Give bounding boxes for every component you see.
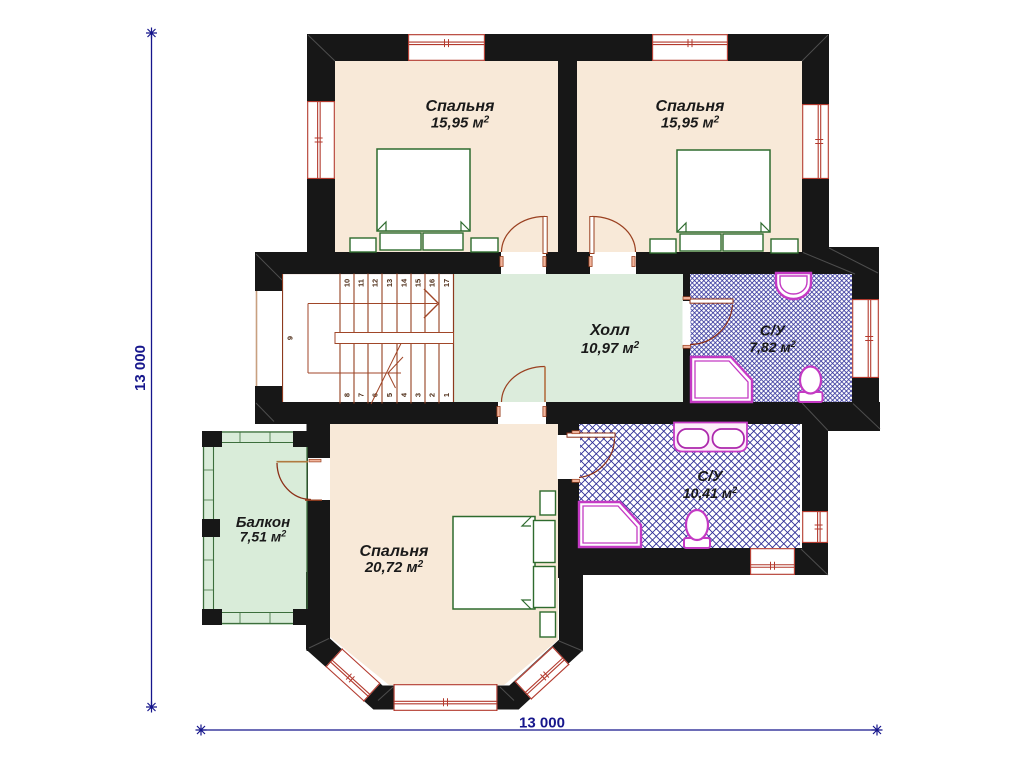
svg-text:10: 10 [343, 279, 352, 287]
svg-text:15: 15 [414, 279, 423, 287]
svg-text:12: 12 [371, 279, 380, 287]
svg-text:8: 8 [343, 393, 352, 397]
svg-text:Холл: Холл [589, 322, 630, 339]
svg-text:Спальня: Спальня [656, 98, 726, 115]
svg-text:С/У: С/У [760, 323, 787, 340]
svg-text:3: 3 [414, 393, 423, 397]
svg-text:15,95 м2: 15,95 м2 [431, 115, 490, 132]
svg-text:Спальня: Спальня [360, 543, 430, 560]
svg-text:2: 2 [428, 393, 437, 397]
svg-text:20,72 м2: 20,72 м2 [364, 559, 424, 576]
svg-text:17: 17 [442, 279, 451, 287]
svg-text:10,41 м2: 10,41 м2 [683, 485, 737, 501]
svg-text:С/У: С/У [697, 468, 724, 485]
svg-text:14: 14 [400, 278, 409, 287]
svg-text:11: 11 [357, 279, 366, 287]
svg-text:9: 9 [286, 336, 295, 340]
svg-text:7: 7 [357, 393, 366, 397]
svg-text:13 000: 13 000 [519, 715, 565, 732]
svg-text:15,95 м2: 15,95 м2 [661, 115, 720, 132]
svg-text:16: 16 [428, 279, 437, 287]
svg-text:Спальня: Спальня [426, 98, 496, 115]
svg-text:5: 5 [385, 393, 394, 397]
svg-text:1: 1 [442, 393, 451, 397]
svg-text:10,97 м2: 10,97 м2 [581, 340, 640, 357]
svg-text:13: 13 [385, 279, 394, 287]
svg-text:7,51 м2: 7,51 м2 [240, 529, 287, 545]
svg-text:7,82 м2: 7,82 м2 [749, 339, 796, 355]
svg-text:13 000: 13 000 [132, 345, 149, 391]
